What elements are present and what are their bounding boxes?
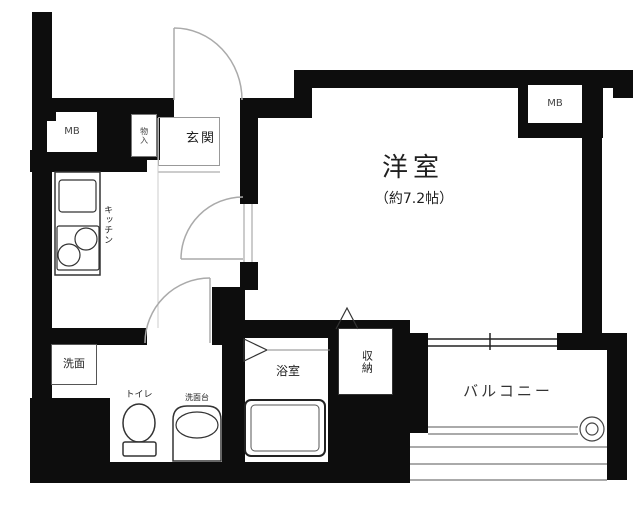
fixtures-layer (0, 0, 640, 507)
toilet-base (123, 442, 156, 456)
balcony-label: バルコニー (438, 383, 578, 401)
bathroom-label: 浴室 (258, 364, 318, 380)
washroom-door-arc (145, 278, 210, 343)
stove-burner-2 (58, 244, 80, 266)
storage-door-caret (336, 308, 358, 329)
toilet-bowl (123, 404, 155, 442)
room-door-arc (181, 197, 243, 259)
meter-box-left-label: MB (47, 112, 97, 152)
entrance-label: 玄関 (171, 130, 231, 148)
stove-burner-1 (75, 228, 97, 250)
vanity-basin (176, 412, 218, 438)
bathtub-outer (245, 400, 325, 456)
main-room-label: 洋室 (353, 153, 473, 185)
kitchen-sink (59, 180, 96, 212)
floorplan-canvas: 洋室 （約7.2帖） 玄関 キッチン MB MB 物入 洗面 トイレ 洗面台 浴… (0, 0, 640, 507)
balcony-drain-outer (580, 417, 604, 441)
kitchen-label: キッチン (100, 194, 114, 256)
vanity-label: 洗面台 (167, 392, 227, 403)
storage-label: 収納 (358, 338, 374, 386)
bath-door-triangle (244, 339, 267, 361)
hall-closet-label: 物入 (134, 117, 154, 155)
toilet-label: トイレ (114, 389, 164, 401)
washroom-label: 洗面 (51, 344, 97, 385)
entrance-door-arc (174, 28, 242, 100)
main-room-size: （約7.2帖） (334, 190, 494, 208)
meter-box-right-label: MB (528, 85, 582, 123)
